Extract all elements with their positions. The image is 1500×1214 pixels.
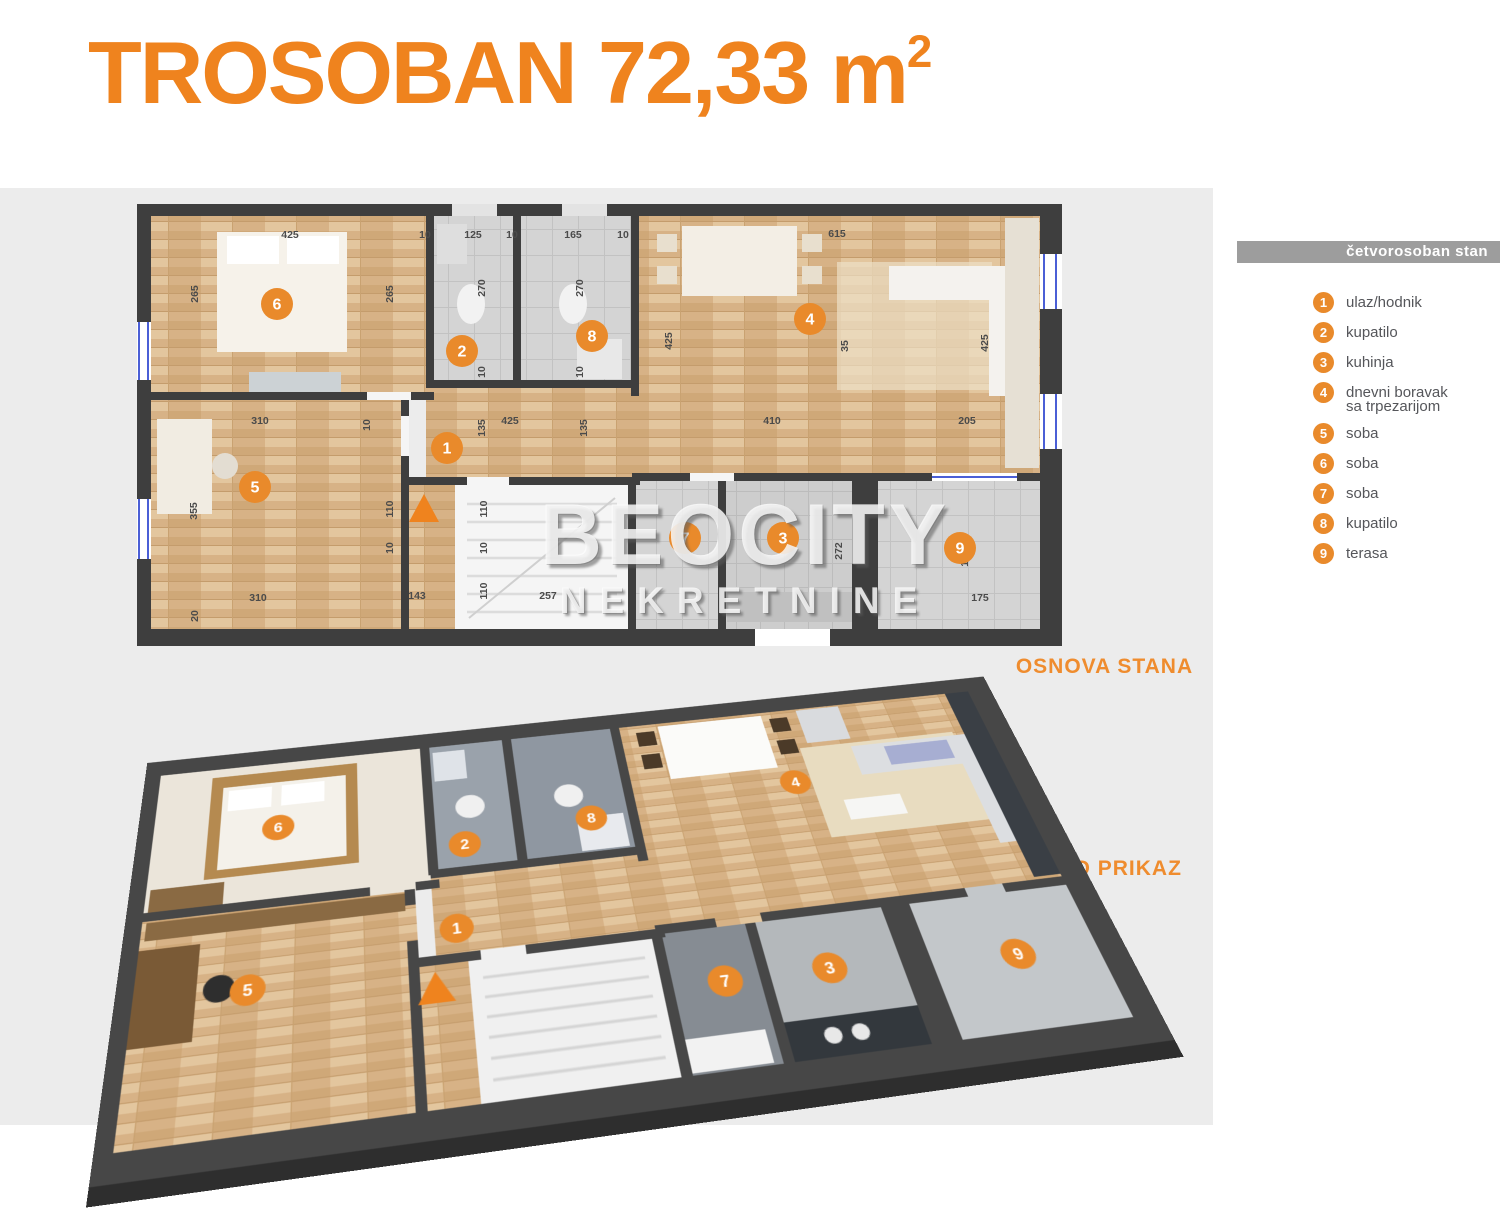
dimension-label: 270 [574, 279, 586, 297]
kitchen-counter [727, 592, 852, 622]
chair [802, 266, 822, 284]
legend-header: četvorosoban stan [1237, 241, 1500, 263]
room-marker-number: 3 [779, 531, 788, 548]
dimension-label: 10 [361, 419, 373, 431]
dimension-label: 425 [663, 332, 675, 350]
legend-item: 4dnevni boravaksa trpezarijom [1313, 382, 1493, 414]
legend-number-badge: 9 [1313, 543, 1334, 564]
room-marker-number: 2 [460, 838, 470, 853]
dimension-label: 270 [476, 279, 488, 297]
dimension-label: 310 [251, 415, 269, 427]
room-marker-number: 6 [273, 297, 282, 314]
legend-label: kupatilo [1346, 513, 1398, 531]
page-title-superscript: 2 [907, 26, 930, 77]
dimension-label: 143 [408, 590, 426, 602]
room-marker-3: 3 [767, 522, 799, 554]
floor-plan-3d: 123456789 [86, 674, 1184, 1208]
dresser [249, 372, 341, 392]
dimension-label: 135 [476, 419, 488, 437]
legend-label: terasa [1346, 543, 1388, 561]
page-title-text: TROSOBAN 72,33 m [88, 23, 907, 122]
legend-item: 9terasa [1313, 543, 1493, 564]
legend-item: 7soba [1313, 483, 1493, 504]
dimension-label: 425 [501, 415, 519, 427]
legend-item: 3kuhinja [1313, 352, 1493, 373]
chair [657, 234, 677, 252]
legend-number-badge: 8 [1313, 513, 1334, 534]
room-marker-9: 9 [944, 532, 976, 564]
dimension-label: 425 [281, 229, 299, 241]
legend-number-badge: 1 [1313, 292, 1334, 313]
dimension-label: 10 [384, 542, 396, 554]
legend-number-badge: 5 [1313, 423, 1334, 444]
dimension-label: 10 [478, 542, 490, 554]
legend-label: soba [1346, 453, 1379, 471]
legend-label: soba [1346, 483, 1379, 501]
dimension-label: 615 [828, 228, 846, 240]
dimension-label: 265 [384, 285, 396, 303]
legend-list: 1ulaz/hodnik2kupatilo3kuhinja4dnevni bor… [1313, 292, 1493, 573]
dimension-label: 425 [979, 334, 991, 352]
dimension-label: 110 [478, 500, 490, 517]
desk-chair [212, 453, 238, 479]
dimension-label: 20 [189, 610, 201, 622]
room-marker-number: 2 [458, 344, 467, 361]
chair [636, 731, 658, 747]
floor-plan-3d-wrapper: 123456789 [86, 674, 1184, 1208]
corridor-floor [405, 481, 455, 629]
legend-number-badge: 7 [1313, 483, 1334, 504]
page-title: TROSOBAN 72,33 m2 [88, 22, 930, 124]
dimension-label: 10 [574, 366, 586, 378]
room-marker-5: 5 [239, 471, 271, 503]
legend-item: 2kupatilo [1313, 322, 1493, 343]
dimension-label: 10 [419, 229, 431, 241]
dimension-label: 35 [839, 340, 851, 352]
chair [641, 753, 663, 769]
legend-number-badge: 2 [1313, 322, 1334, 343]
room-marker-6: 6 [261, 288, 293, 320]
label-osnova-stana: OSNOVA STANA [1002, 655, 1207, 679]
dimension-label: 272 [833, 542, 845, 560]
dimension-label: 310 [249, 592, 267, 604]
legend-label: kupatilo [1346, 322, 1398, 340]
hallway-floor [426, 384, 635, 481]
legend-label: dnevni boravaksa trpezarijom [1346, 382, 1448, 414]
legend-number-badge: 3 [1313, 352, 1334, 373]
chair [802, 234, 822, 252]
legend-item: 1ulaz/hodnik [1313, 292, 1493, 313]
dimension-label: 135 [578, 419, 590, 437]
legend-item: 8kupatilo [1313, 513, 1493, 534]
dimension-label: 10 [506, 229, 518, 241]
legend-item: 5soba [1313, 423, 1493, 444]
dimension-label: 110 [384, 500, 396, 517]
desk [157, 419, 212, 514]
room-marker-1: 1 [431, 432, 463, 464]
room-marker-number: 8 [588, 329, 597, 346]
dimension-label: 125 [464, 229, 482, 241]
room-marker-7: 7 [669, 522, 701, 554]
dimension-label: 165 [564, 229, 582, 241]
dimension-label: 355 [188, 502, 200, 520]
legend-number-badge: 6 [1313, 453, 1334, 474]
dimension-label: 10 [476, 366, 488, 378]
wardrobe [1005, 218, 1039, 468]
legend-label: ulaz/hodnik [1346, 292, 1422, 310]
legend-item: 6soba [1313, 453, 1493, 474]
room-marker-number: 5 [242, 982, 253, 1000]
room-marker-number: 1 [451, 921, 462, 938]
dimension-label: 410 [763, 415, 781, 427]
room-marker-2: 2 [446, 335, 478, 367]
legend-number-badge: 4 [1313, 382, 1334, 403]
dimension-label: 10 [617, 229, 629, 241]
dimension-label: 110 [478, 582, 490, 599]
room-marker-4: 4 [794, 303, 826, 335]
dimension-label: 265 [189, 285, 201, 303]
legend-label: soba [1346, 423, 1379, 441]
room-marker-number: 6 [274, 821, 283, 836]
pillow [227, 236, 279, 264]
room-marker-number: 5 [251, 480, 260, 497]
dimension-label: 257 [539, 590, 557, 602]
room-marker-number: 4 [806, 312, 815, 329]
room-marker-number: 1 [443, 441, 452, 458]
legend-label: kuhinja [1346, 352, 1394, 370]
dimension-label: 175 [971, 592, 989, 604]
dimension-label: 205 [958, 415, 976, 427]
room-marker-8: 8 [576, 320, 608, 352]
floor-plan-2d: 4251012510165106152652652702701010425354… [137, 204, 1062, 654]
room-7-floor [632, 481, 722, 629]
room-marker-number: 9 [956, 541, 965, 558]
shower [432, 750, 467, 782]
room-marker-number: 7 [681, 531, 690, 548]
chair [657, 266, 677, 284]
dining-table [682, 226, 797, 296]
shower [437, 224, 467, 264]
